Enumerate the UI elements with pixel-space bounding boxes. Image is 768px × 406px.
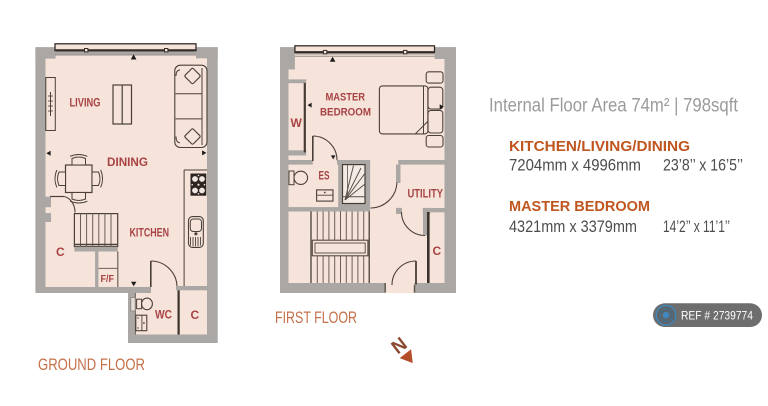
- svg-text:BEDROOM: BEDROOM: [320, 107, 371, 119]
- svg-text:MASTER: MASTER: [326, 92, 366, 104]
- svg-text:C: C: [433, 244, 442, 258]
- svg-text:UTILITY: UTILITY: [408, 187, 444, 201]
- svg-text:ES: ES: [319, 169, 330, 183]
- svg-text:14’2’’ x 11’1’’: 14’2’’ x 11’1’’: [663, 218, 730, 236]
- svg-text:F/F: F/F: [101, 274, 115, 285]
- svg-text:FIRST FLOOR: FIRST FLOOR: [275, 309, 357, 327]
- svg-text:Internal Floor Area 74m² | 798: Internal Floor Area 74m² | 798sqft: [489, 96, 739, 117]
- svg-text:MASTER BEDROOM: MASTER BEDROOM: [509, 199, 650, 215]
- svg-text:KITCHEN/LIVING/DINING: KITCHEN/LIVING/DINING: [509, 139, 690, 155]
- svg-text:REF # 2739774: REF # 2739774: [681, 311, 754, 323]
- svg-text:WC: WC: [155, 308, 172, 322]
- svg-text:23’8’’ x 16’5’’: 23’8’’ x 16’5’’: [663, 157, 743, 175]
- svg-text:KITCHEN: KITCHEN: [130, 226, 170, 240]
- svg-text:GROUND FLOOR: GROUND FLOOR: [38, 356, 145, 374]
- svg-text:C: C: [56, 245, 65, 259]
- svg-text:W: W: [291, 116, 303, 130]
- svg-text:DINING: DINING: [107, 155, 148, 169]
- svg-text:7204mm x 4996mm: 7204mm x 4996mm: [509, 157, 641, 175]
- svg-text:C: C: [191, 308, 200, 322]
- svg-text:4321mm x 3379mm: 4321mm x 3379mm: [509, 218, 637, 236]
- svg-text:LIVING: LIVING: [70, 96, 101, 110]
